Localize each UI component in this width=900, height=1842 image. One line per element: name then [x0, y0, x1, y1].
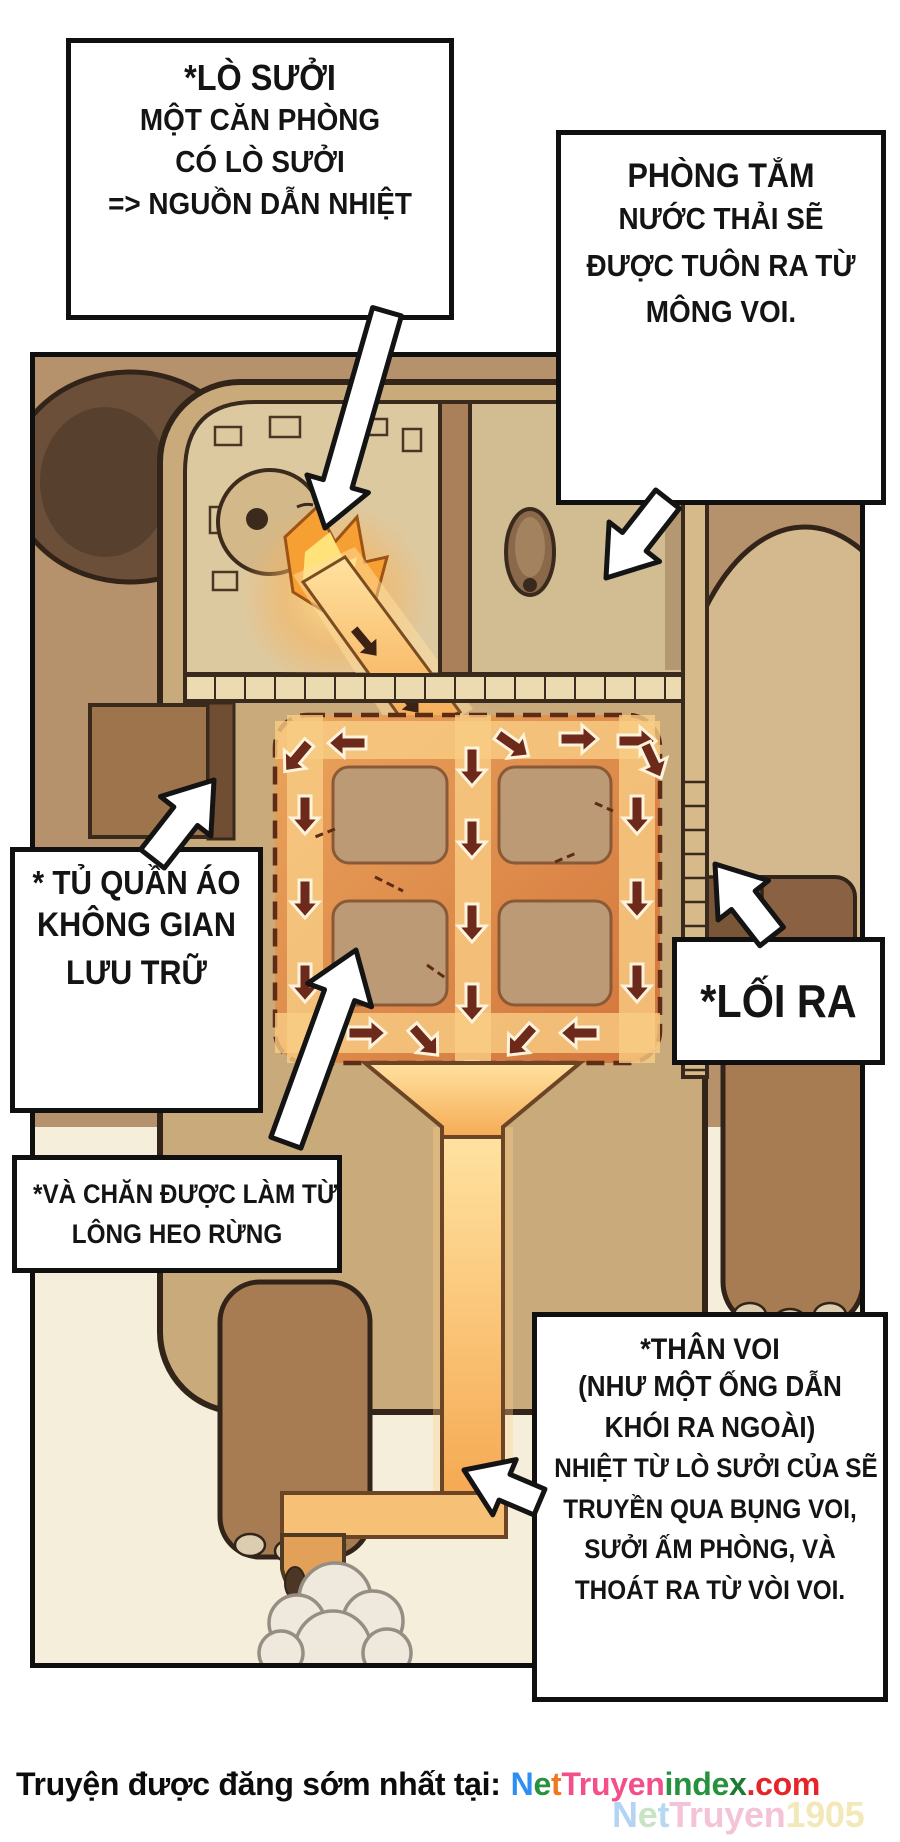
callout-furnace: *LÒ SƯỞI MỘT CĂN PHÒNG CÓ LÒ SƯỞI => NGU… [66, 38, 454, 320]
callout-trunk-subtitle-line: (NHƯ MỘT ỐNG DẪN [554, 1367, 865, 1408]
callout-blanket-line: *VÀ CHĂN ĐƯỢC LÀM TỪ [33, 1174, 321, 1215]
blanket-room [499, 767, 611, 863]
callout-trunk-line: TRUYỀN QUA BỤNG VOI, [554, 1489, 865, 1530]
callout-wardrobe-line: KHÔNG GIAN [27, 902, 246, 950]
callout-furnace-line: MỘT CĂN PHÒNG [90, 99, 430, 141]
callout-exit-title: *LỐI RA [687, 974, 870, 1028]
callout-wardrobe: * TỦ QUẦN ÁO KHÔNG GIAN LƯU TRỮ [10, 847, 263, 1113]
callout-wardrobe-line: LƯU TRỮ [27, 950, 246, 998]
callout-trunk-line: THOÁT RA TỪ VÒI VOI. [554, 1570, 865, 1611]
callout-bathroom-line: NƯỚC THẢI SẼ [577, 196, 865, 243]
footer-credit: Truyện được đăng sớm nhất tại:NetTruyeni… [16, 1766, 820, 1803]
callout-trunk-title: *THÂN VOI [554, 1333, 865, 1367]
callout-furnace-line: CÓ LÒ SƯỞI [90, 141, 430, 183]
callout-bathroom-line: ĐƯỢC TUÔN RA TỪ [577, 243, 865, 290]
floor-plank-divider [185, 675, 705, 701]
callout-exit: *LỐI RA [672, 937, 885, 1065]
callout-furnace-title: *LÒ SƯỞI [90, 57, 430, 99]
callout-trunk: *THÂN VOI (NHƯ MỘT ỐNG DẪN KHÓI RA NGOÀI… [532, 1312, 888, 1702]
blanket-room [499, 901, 611, 1005]
callout-blanket-line: LÔNG HEO RỪNG [33, 1214, 321, 1255]
callout-bathroom: PHÒNG TẮM NƯỚC THẢI SẼ ĐƯỢC TUÔN RA TỪ M… [556, 130, 886, 505]
callout-trunk-subtitle-line: KHÓI RA NGOÀI) [554, 1408, 865, 1449]
bathroom-window-icon [506, 509, 554, 595]
callout-trunk-line: NHIỆT TỪ LÒ SƯỞI CỦA SẼ [554, 1448, 865, 1489]
callout-bathroom-line: MÔNG VOI. [577, 289, 865, 336]
callout-wardrobe-title: * TỦ QUẦN ÁO [27, 864, 246, 902]
site-name: NetTruyenindex.com [511, 1766, 820, 1802]
callout-bathroom-title: PHÒNG TẮM [577, 157, 865, 196]
wardrobe-door [90, 703, 234, 839]
callout-furnace-line: => NGUỒN DẪN NHIỆT [90, 183, 430, 225]
room-divider-wall [440, 402, 470, 674]
footer-credit-text: Truyện được đăng sớm nhất tại: [16, 1766, 501, 1802]
comic-page: *LÒ SƯỞI MỘT CĂN PHÒNG CÓ LÒ SƯỞI => NGU… [0, 0, 900, 1842]
callout-trunk-line: SƯỞI ẤM PHÒNG, VÀ [554, 1529, 865, 1570]
callout-blanket: *VÀ CHĂN ĐƯỢC LÀM TỪ LÔNG HEO RỪNG [12, 1155, 342, 1273]
blanket-room [333, 901, 447, 1005]
blanket-room [333, 767, 447, 863]
